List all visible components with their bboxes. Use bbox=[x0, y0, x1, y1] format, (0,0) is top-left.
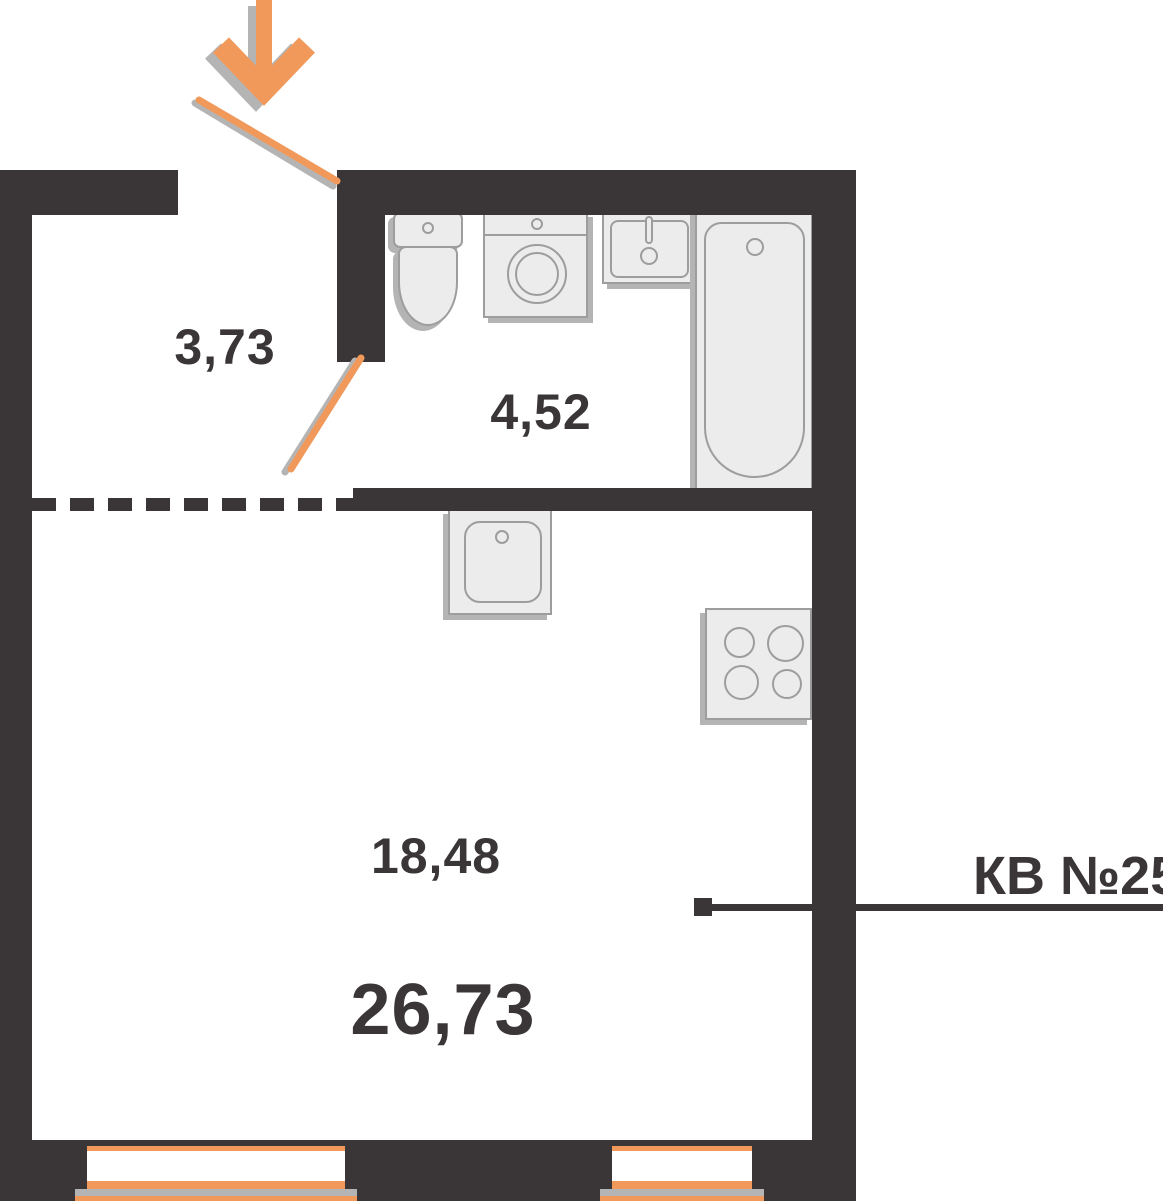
plan-annotations-overlay bbox=[0, 0, 1163, 1201]
bathroom-area-label: 4,52 bbox=[490, 383, 591, 441]
bathroom-door-swing-line bbox=[291, 358, 361, 469]
living-area-label: 18,48 bbox=[371, 827, 501, 885]
entrance-door-swing-shadow bbox=[195, 103, 333, 186]
apartment-reference-marker bbox=[694, 898, 712, 916]
floor-plan: 3,73 4,52 18,48 26,73 КВ №25 bbox=[0, 0, 1163, 1201]
apartment-number-label: КВ №25 bbox=[973, 845, 1163, 907]
total-area-label: 26,73 bbox=[350, 969, 535, 1051]
entrance-door-swing-line bbox=[199, 100, 337, 181]
hallway-area-label: 3,73 bbox=[174, 318, 275, 376]
